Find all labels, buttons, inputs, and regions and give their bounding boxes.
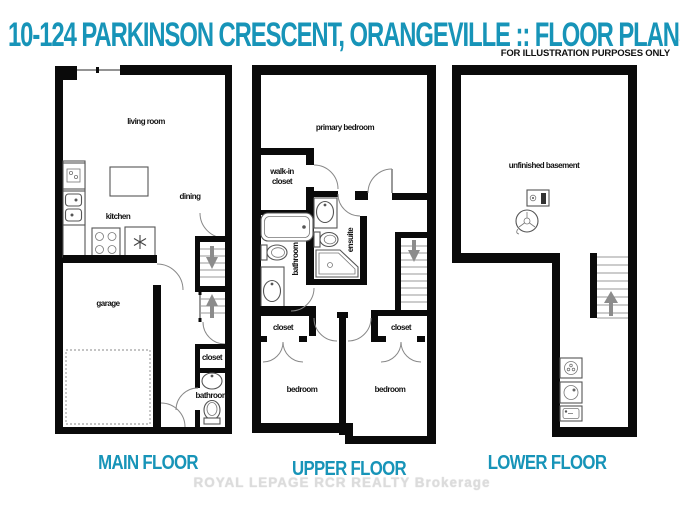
stairs-up — [590, 253, 628, 318]
main-floor-plan: living room kitchen dining garage closet… — [46, 58, 232, 434]
stairs-up-arrow-icon — [206, 294, 218, 318]
fridge-icon — [125, 227, 155, 257]
floor-plan-sheet: 10-124 PARKINSON CRESCENT, ORANGEVILLE :… — [0, 0, 680, 510]
room-label: closet — [391, 323, 412, 332]
room-label: garage — [96, 299, 120, 308]
dryer-icon — [560, 358, 582, 378]
shower-icon — [316, 250, 358, 277]
stairs-down-arrow-icon — [408, 240, 420, 262]
sink-icon — [261, 267, 284, 308]
room-label: closet — [202, 353, 223, 362]
room-label: living room — [127, 117, 165, 126]
room-label: closet — [272, 177, 293, 186]
lower-floor-label: LOWER FLOOR — [480, 452, 614, 475]
garage-wall — [153, 285, 161, 427]
toilet-icon — [204, 401, 220, 425]
primary-bedroom-door — [368, 169, 427, 200]
walk-in-door-arc — [314, 165, 338, 189]
room-label: closet — [273, 323, 294, 332]
sink-icon — [314, 198, 337, 228]
closet-door-arc — [203, 322, 225, 344]
stairs-up — [199, 291, 226, 322]
electrical-panel-icon — [527, 190, 549, 206]
laundry-tub-icon — [560, 406, 582, 421]
disclaimer-text: FOR ILLUSTRATION PURPOSES ONLY — [501, 48, 670, 59]
bedroom-right-door-arc — [348, 318, 371, 341]
dishwasher-icon — [63, 163, 85, 189]
furnace-icon — [516, 210, 538, 234]
toilet-icon — [314, 232, 338, 247]
kitchen-sink-icon — [63, 191, 85, 225]
garage-parking-outline — [66, 350, 150, 424]
lower-floor-walls — [452, 65, 637, 437]
stairs-down — [195, 236, 225, 292]
room-label: bathroom — [291, 242, 300, 275]
bathtub-icon — [261, 213, 313, 241]
room-label: walk-in — [269, 167, 294, 176]
room-label: primary bedroom — [316, 123, 375, 132]
room-label: bedroom — [287, 385, 318, 394]
kitchen-island — [110, 167, 148, 196]
lower-floor-plan: unfinished basement — [449, 60, 639, 440]
main-floor-label: MAIN FLOOR — [81, 452, 215, 475]
kitchen-garage-wall — [63, 255, 157, 263]
bedroom-left-door-arc — [314, 318, 337, 341]
stairs-down — [395, 232, 427, 312]
sink-icon — [202, 373, 222, 389]
closet-right — [371, 310, 432, 362]
upper-floor-plan: primary bedroom walk-in closet bathroom … — [250, 60, 440, 450]
room-label: ensuite — [346, 227, 355, 253]
hall-door-arc — [200, 213, 225, 238]
room-label: kitchen — [106, 212, 131, 221]
toilet-icon — [261, 245, 287, 260]
bedroom-divider-wall — [337, 312, 348, 435]
ensuite — [306, 191, 368, 285]
brokerage-watermark: ROYAL LEPAGE RCR REALTY Brokerage — [182, 475, 502, 490]
washer-icon — [560, 382, 582, 403]
stairs-up-arrow-icon — [604, 291, 618, 316]
room-label: bedroom — [375, 385, 406, 394]
garage-rear-door-arc — [161, 403, 185, 427]
room-label: bathroom — [196, 391, 229, 400]
front-window — [77, 67, 120, 73]
room-label: unfinished basement — [509, 161, 580, 170]
room-label: dining — [180, 192, 202, 201]
stove-icon — [92, 228, 120, 258]
